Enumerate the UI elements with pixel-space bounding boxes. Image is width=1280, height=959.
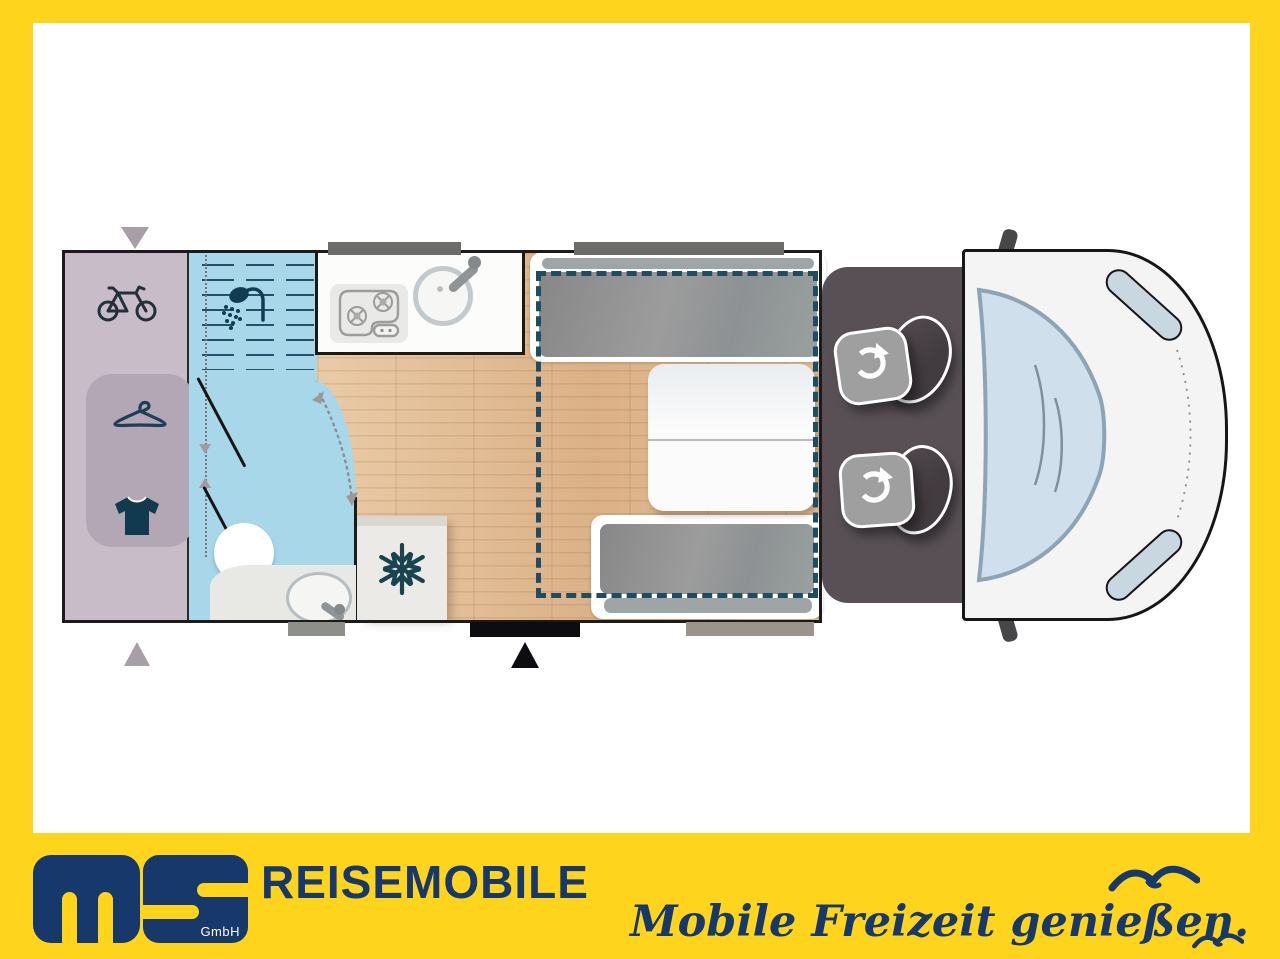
swivel-seat-passenger [836, 313, 948, 417]
logo-letter-m [33, 855, 140, 943]
company-name: REISEMOBILE [261, 859, 589, 905]
swivel-seat-driver [838, 439, 950, 543]
window-dinette [574, 242, 784, 255]
garage-access-arrow-bottom [124, 642, 150, 666]
logo-slot [143, 905, 199, 919]
garage-access-arrow-top [121, 227, 149, 249]
logo-letter-s: GmbH [143, 855, 248, 943]
logo-slot [62, 892, 77, 943]
seagull-icon-small [1192, 926, 1244, 956]
brand-band: GmbH REISEMOBILE Mobile Freizeit genieße… [0, 833, 1280, 959]
swivel-arrow-icon [853, 466, 895, 508]
entry-door-arrow [511, 642, 539, 668]
windshield [965, 250, 1140, 620]
gmbh-label: GmbH [200, 924, 240, 939]
living-area-walls [62, 250, 822, 623]
window-kitchen [328, 242, 461, 255]
slogan: Mobile Freizeit genießen. [630, 901, 1249, 944]
swivel-arrow-icon [849, 342, 891, 384]
entry-door [470, 622, 580, 637]
window-bench [686, 622, 814, 636]
logo-slot [197, 883, 248, 897]
logo-slot [98, 892, 113, 943]
vent-bathroom [288, 622, 345, 636]
seagull-icon-large [1108, 856, 1200, 902]
hood-seam-dashed [1165, 345, 1205, 525]
page: GmbH REISEMOBILE Mobile Freizeit genieße… [0, 0, 1280, 959]
